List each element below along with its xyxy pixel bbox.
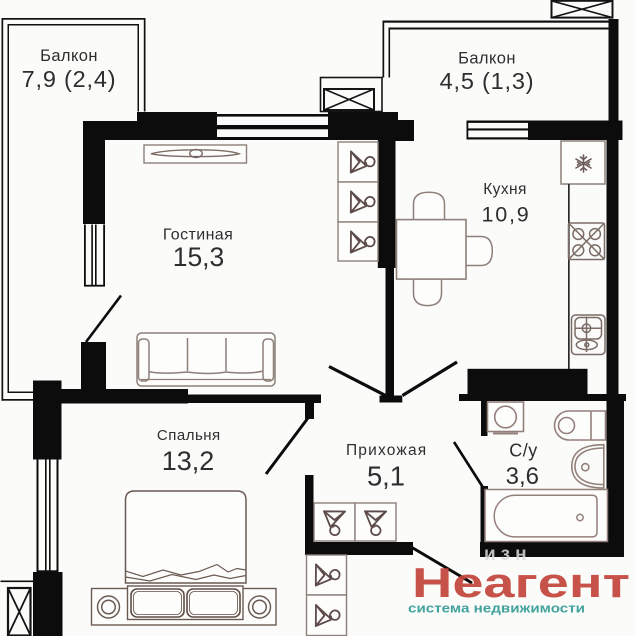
svg-text:3,6: 3,6: [506, 463, 539, 490]
svg-text:Спальня: Спальня: [157, 427, 221, 444]
svg-text:Гостиная: Гостиная: [163, 227, 233, 244]
svg-text:10,9: 10,9: [481, 203, 530, 227]
svg-text:Прихожая: Прихожая: [346, 442, 427, 459]
svg-text:система недвижимости: система недвижимости: [408, 602, 585, 616]
svg-text:5,1: 5,1: [367, 460, 405, 491]
svg-text:13,2: 13,2: [162, 446, 215, 476]
svg-text:Балкон: Балкон: [40, 47, 98, 65]
svg-text:15,3: 15,3: [173, 242, 225, 272]
svg-text:С/у: С/у: [509, 441, 538, 461]
svg-text:7,9 (2,4): 7,9 (2,4): [22, 66, 117, 92]
svg-text:Кухня: Кухня: [483, 181, 526, 198]
svg-text:Неагент: Неагент: [412, 559, 630, 606]
svg-text:Балкон: Балкон: [458, 50, 516, 68]
svg-text:4,5 (1,3): 4,5 (1,3): [440, 68, 535, 94]
